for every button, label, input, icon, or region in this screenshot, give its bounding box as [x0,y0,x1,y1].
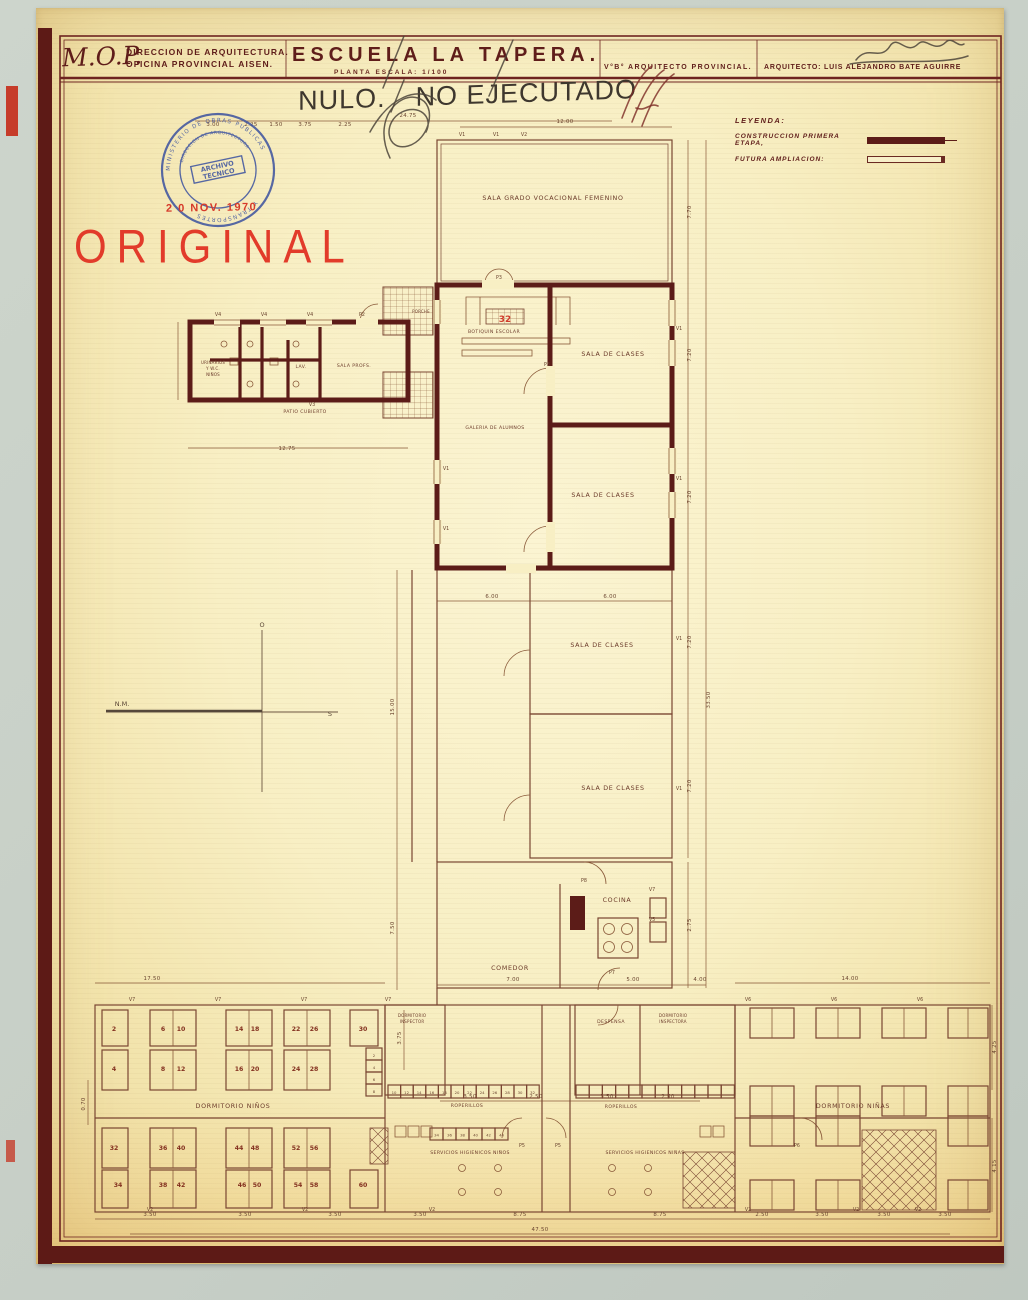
bed [350,1170,378,1208]
dim-label: 8.75 [653,1212,666,1218]
room-label-comedor: COMEDOR [491,965,529,972]
window-door-code: V7 [215,997,221,1003]
stamp-ring-inner-text: DIRECCION DE ARQUITECTURA [174,123,251,164]
left-binding-band [38,28,52,1264]
window-door-code: P3 [544,362,550,368]
room-label-sala-clases-2: SALA DE CLASES [571,492,634,499]
dim-label: 7.00 [506,977,519,983]
dim-label: 2.75 [687,918,693,931]
legend-item-future: FUTURA AMPLIACION: [735,156,957,163]
room-label-sala-profs: SALA PROFS. [337,363,371,369]
bed-number: 18 [251,1026,260,1033]
bed-number: 6 [161,1026,165,1033]
bed-number: 46 [238,1182,247,1189]
dim-label: 3.50 [413,1212,426,1218]
locker-cell [695,1085,708,1098]
red-edge-mark-bottom [6,1140,15,1162]
partitions-first-stage [210,322,320,400]
room-label-patio: PATIO CUBIERTO [283,409,326,415]
date-stamp: 2 0 NOV. 1970 [166,201,257,215]
locker-number: 30 [518,1090,523,1095]
legend-first-stage-swatch [867,137,945,144]
bed-number: 8 [161,1066,165,1073]
window-door-code: V3 [309,402,315,408]
dim-label: 12.75 [279,446,296,452]
room-label-inspectora-1: DORMITORIO [659,1013,687,1018]
dim-label: 3.50 [238,1212,251,1218]
dim-label: 3.50 [328,1212,341,1218]
window-door-code: P5 [519,1143,525,1149]
dim-label: 3.75 [397,1031,403,1044]
bed-number: 24 [292,1066,301,1073]
legend-first-stage-tail [945,140,957,141]
compass-south-label: S [328,710,332,718]
window-door-code: P5 [555,1143,561,1149]
bed-number: 26 [310,1026,319,1033]
locker-number: 40 [473,1133,478,1138]
scanned-blueprint-sheet: SALA GRADO VOCACIONAL FEMENINO BOTIQUIN … [0,0,1028,1300]
room-label-sala-clases-1: SALA DE CLASES [581,351,644,358]
locker-number: 44 [499,1133,504,1138]
dim-label: 6.00 [485,594,498,600]
dim-label: 47.50 [532,1227,549,1233]
room-label-urinarios-3: NIÑOS [206,372,220,377]
approval-label: V°B° ARQUITECTO PROVINCIAL. [604,64,752,71]
window-door-code: P7 [609,970,615,976]
window-door-code: P2 [359,312,365,318]
room-label-servicios-ninas: SERVICIOS HIGIENICOS NIÑAS [605,1149,684,1156]
locker-number: 16 [429,1090,434,1095]
room-label-inspectora-2: INSPECTORA [659,1019,686,1024]
bed-number: 10 [177,1026,186,1033]
room-label-roperillos-right: ROPERILLOS [605,1104,638,1110]
dim-label: 7.70 [687,205,693,218]
north-magnetic-label: N.M. [115,700,130,708]
dim-label: 2.50 [755,1212,768,1218]
compass-cross [106,630,338,792]
window-door-code: V5 [649,917,655,923]
dim-label: 3.50 [877,1212,890,1218]
dim-label: 7.20 [687,490,693,503]
bed-number: 56 [310,1145,319,1152]
bed-number: 40 [177,1145,186,1152]
nulo-word1: NULO. [298,83,385,116]
room-label-urinarios-2: Y W.C. [205,366,220,371]
bed-number: 42 [177,1182,186,1189]
locker-cell [708,1085,721,1098]
project-title: ESCUELA LA TAPERA. [292,44,600,67]
locker-number: 2 [373,1053,376,1058]
room-label-sala-clases-4: SALA DE CLASES [581,785,644,792]
window-door-code: V6 [745,997,751,1003]
room-labels: SALA GRADO VOCACIONAL FEMENINO BOTIQUIN … [115,195,890,1156]
dim-label: 3.50 [938,1212,951,1218]
locker-number: 8 [373,1089,376,1094]
architect-label: ARQUITECTO: LUIS ALEJANDRO BATE AGUIRRE [764,64,961,71]
window-door-code: V1 [676,326,682,332]
locker-number: 38 [460,1133,465,1138]
window-door-code: V7 [301,997,307,1003]
window-door-code: V4 [261,312,267,318]
dim-label: 7.50 [390,921,396,934]
window-door-code: V4 [307,312,313,318]
walls-future-stage [95,140,990,1212]
red-number-annotation: 32 [499,315,512,325]
window-door-code: P6 [794,1143,800,1149]
bed-number: 34 [114,1182,123,1189]
window-door-code: P3 [496,275,502,281]
bed-number: 52 [292,1145,301,1152]
window-double-lines [214,300,675,544]
bed [102,1170,128,1208]
locker-cell [576,1085,589,1098]
org-line1: DIRECCION DE ARQUITECTURA. [126,46,289,58]
locker-number: 28 [505,1090,510,1095]
dim-label: 2.25 [338,122,351,128]
locker-cell [616,1085,629,1098]
window-door-code: V1 [493,132,499,138]
bed-number: 54 [294,1182,303,1189]
room-label-botiquin: BOTIQUIN ESCOLAR [468,329,521,335]
locker-number: 18 [442,1090,447,1095]
locker-number: 34 [434,1133,439,1138]
locker-cell [682,1085,695,1098]
bed-number: 2 [112,1026,116,1033]
dim-label: 3.75 [298,122,311,128]
window-door-code: V1 [443,526,449,532]
window-door-code: V1 [443,466,449,472]
window-door-code: V1 [676,476,682,482]
window-door-code: P8 [581,878,587,884]
window-door-code: V4 [215,312,221,318]
dim-label: 24.75 [400,113,417,119]
dim-label: 7.20 [687,348,693,361]
dim-label: 4.25 [992,1040,998,1053]
dim-label: 5.00 [626,977,639,983]
window-door-code: V1 [676,636,682,642]
locker-number: 32 [530,1090,535,1095]
dim-label: 6.00 [603,594,616,600]
compass-west-label: O [259,621,264,629]
locker-number: 20 [455,1090,460,1095]
bed-number: 28 [310,1066,319,1073]
locker-number: 6 [373,1077,376,1082]
window-door-code: V7 [649,887,655,893]
bed-number: 44 [235,1145,244,1152]
room-label-cocina: COCINA [603,897,632,904]
bed-number: 60 [359,1182,368,1189]
window-door-code: V2 [521,132,527,138]
nulo-word2: NO EJECUTADO [416,74,637,112]
window-door-code: V7 [385,997,391,1003]
locker-number: 26 [492,1090,497,1095]
bed-number: 22 [292,1026,301,1033]
bed-number: 14 [235,1026,244,1033]
bed-number: 58 [310,1182,319,1189]
locker-number: 24 [480,1090,485,1095]
dim-label: 33.50 [706,691,712,708]
window-door-code: V1 [676,786,682,792]
room-label-dorm-ninos: DORMITORIO NIÑOS [196,1101,271,1110]
bed-number: 50 [253,1182,262,1189]
room-label-despensa: DESPENSA [597,1019,625,1025]
room-label-servicios-ninos: SERVICIOS HIGIENICOS NIÑOS [430,1149,510,1156]
dim-label: 14.00 [842,976,859,982]
legend-item-first-stage: CONSTRUCCION PRIMERA ETAPA, [735,133,957,147]
dimension-lines [88,121,992,1234]
bed-number: 36 [159,1145,168,1152]
dim-label: 12.00 [557,119,574,125]
room-label-porche: PORCHE [412,309,430,314]
bed-number: 12 [177,1066,186,1073]
room-label-lav: LAV. [295,364,306,370]
locker-number: 36 [447,1133,452,1138]
locker-cell [721,1085,734,1098]
window-door-code: V6 [831,997,837,1003]
room-label-urinarios-1: URINARIOS [201,360,225,365]
legend-future-swatch [867,156,945,163]
locker-number: 14 [417,1090,422,1095]
red-edge-mark-top [6,86,18,136]
locker-number: 12 [404,1090,409,1095]
dim-label: 17.50 [144,976,161,982]
bed-number: 48 [251,1145,260,1152]
dim-label: 15.00 [390,698,396,715]
org-lines: DIRECCION DE ARQUITECTURA. OFICINA PROVI… [126,46,289,70]
locker-number: 22 [467,1090,472,1095]
window-door-code: V7 [129,997,135,1003]
dim-label: 3.50 [815,1212,828,1218]
dim-label: 4.00 [693,977,706,983]
room-label-sala-grado: SALA GRADO VOCACIONAL FEMENINO [482,195,623,202]
original-stamp-text: ORIGINAL [74,220,355,274]
locker-number: 4 [373,1065,376,1070]
bed-number: 38 [159,1182,168,1189]
sheet-subtitle: PLANTA ESCALA: 1/100 [334,69,448,76]
room-label-galeria: GALERIA DE ALUMNOS [465,425,524,431]
bottom-binding-band [38,1246,1004,1263]
room-label-sala-clases-3: SALA DE CLASES [570,642,633,649]
locker-number: 42 [486,1133,491,1138]
window-door-code: V2 [915,1207,921,1213]
org-line2: OFICINA PROVINCIAL AISEN. [126,58,289,70]
room-label-roperillos-left: ROPERILLOS [451,1103,484,1109]
window-door-code: V6 [917,997,923,1003]
dim-label: 0.70 [81,1097,87,1110]
room-label-inspector-1: DORMITORIO [398,1013,426,1018]
legend-future-label: FUTURA AMPLIACION: [735,156,863,163]
room-label-inspector-2: INSPECTOR [400,1019,425,1024]
legend-heading: LEYENDA: [735,116,957,125]
legend: LEYENDA: CONSTRUCCION PRIMERA ETAPA, FUT… [735,116,957,172]
room-label-dorm-ninas: DORMITORIO NIÑAS [816,1101,890,1110]
dim-label: 4.15 [992,1159,998,1172]
bed-number: 20 [251,1066,260,1073]
bed-number: 16 [235,1066,244,1073]
dim-label: 7.20 [687,635,693,648]
locker-number: 10 [392,1090,397,1095]
window-door-code: V1 [459,132,465,138]
bed-number: 4 [112,1066,117,1073]
bed-number: 32 [110,1145,119,1152]
window-door-code: V2 [429,1207,435,1213]
locker-cell [642,1085,655,1098]
dim-label: 7.20 [687,779,693,792]
bed-number: 30 [359,1026,368,1033]
legend-first-stage-label: CONSTRUCCION PRIMERA ETAPA, [735,133,863,147]
dim-label: 8.75 [513,1212,526,1218]
